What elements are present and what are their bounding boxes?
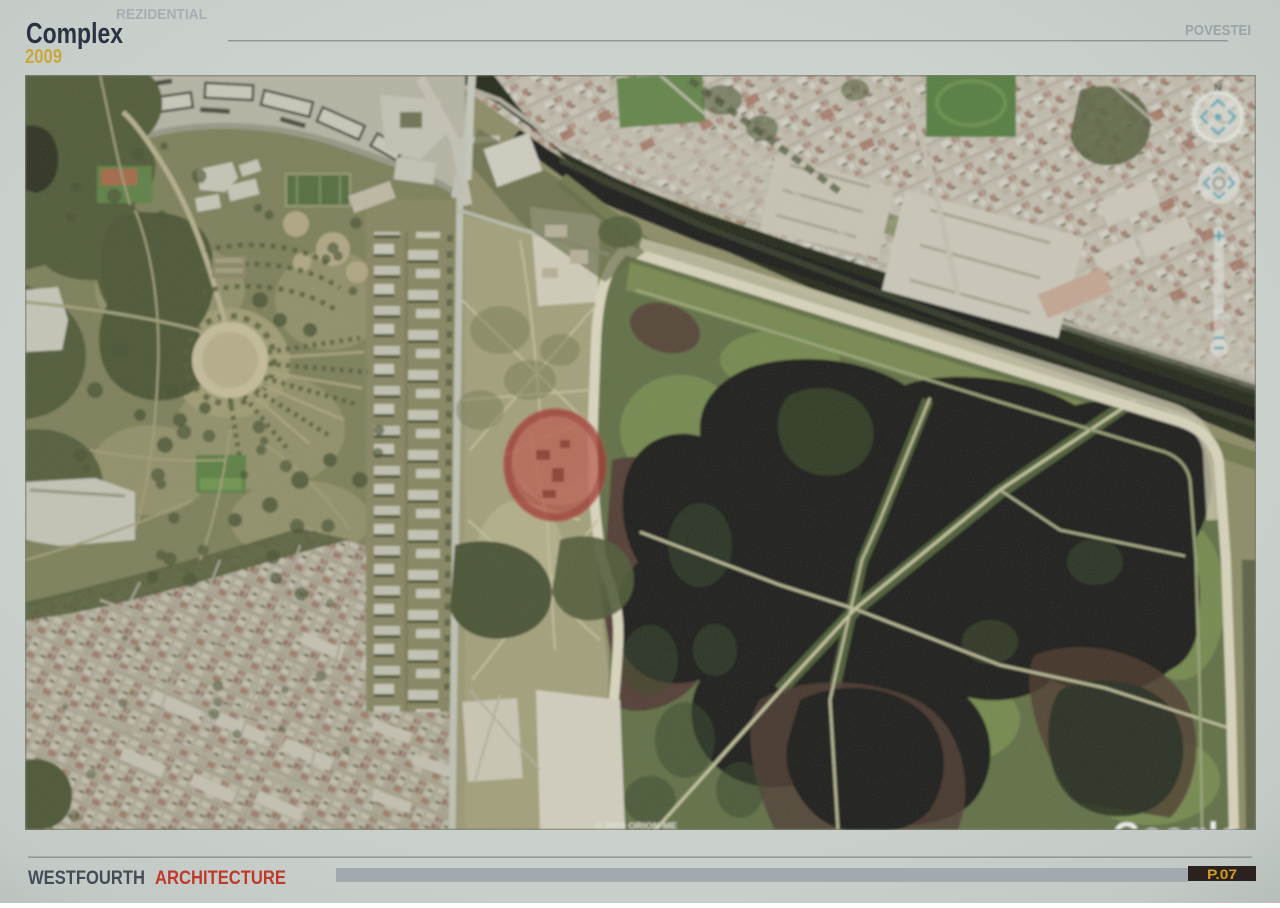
svg-text:ARCHITECTURE: ARCHITECTURE xyxy=(155,868,286,889)
svg-text:2009: 2009 xyxy=(25,46,62,68)
svg-text:WESTFOURTH: WESTFOURTH xyxy=(28,868,145,889)
svg-text:POVESTEI: POVESTEI xyxy=(1185,22,1251,39)
svg-text:REZIDENTIAL: REZIDENTIAL xyxy=(116,6,207,23)
svg-text:P.07: P.07 xyxy=(1207,866,1237,882)
